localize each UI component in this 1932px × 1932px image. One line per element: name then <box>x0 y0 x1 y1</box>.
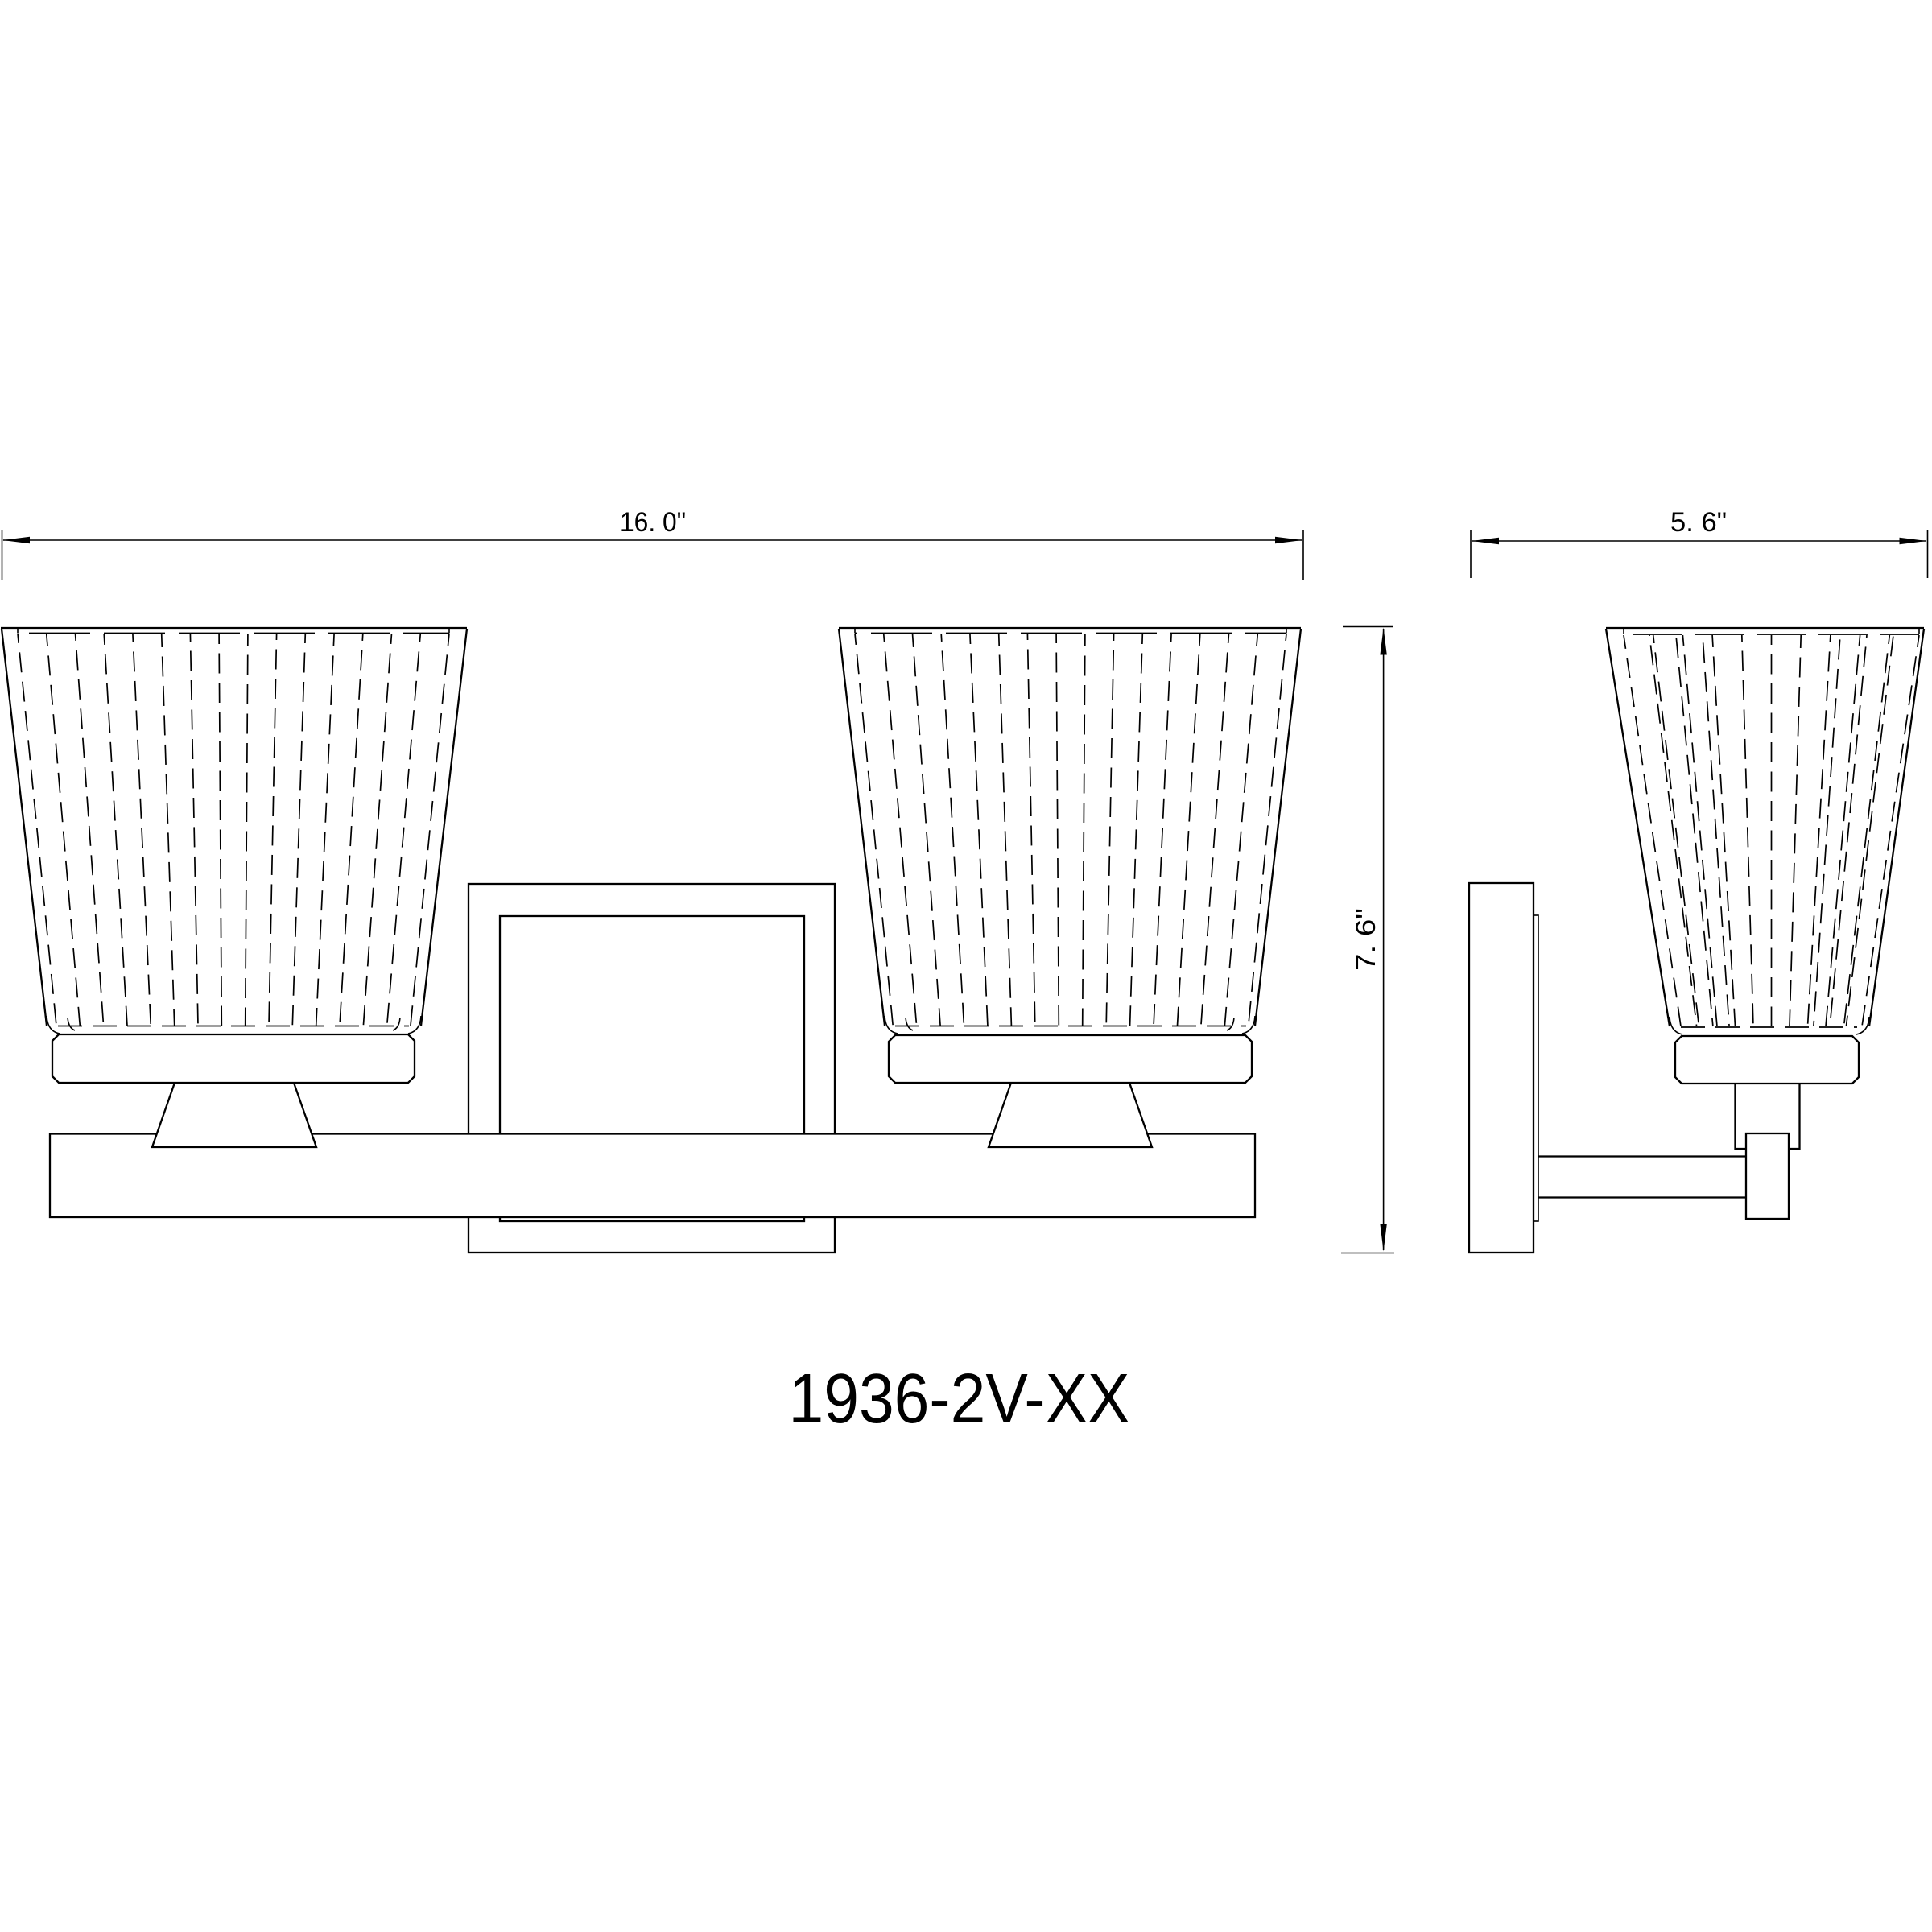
svg-text:16. 0": 16. 0" <box>620 507 686 538</box>
svg-text:5. 6": 5. 6" <box>1670 507 1727 538</box>
svg-text:1936-2V-XX: 1936-2V-XX <box>789 1360 1130 1438</box>
svg-text:7. 6": 7. 6" <box>1351 908 1381 971</box>
